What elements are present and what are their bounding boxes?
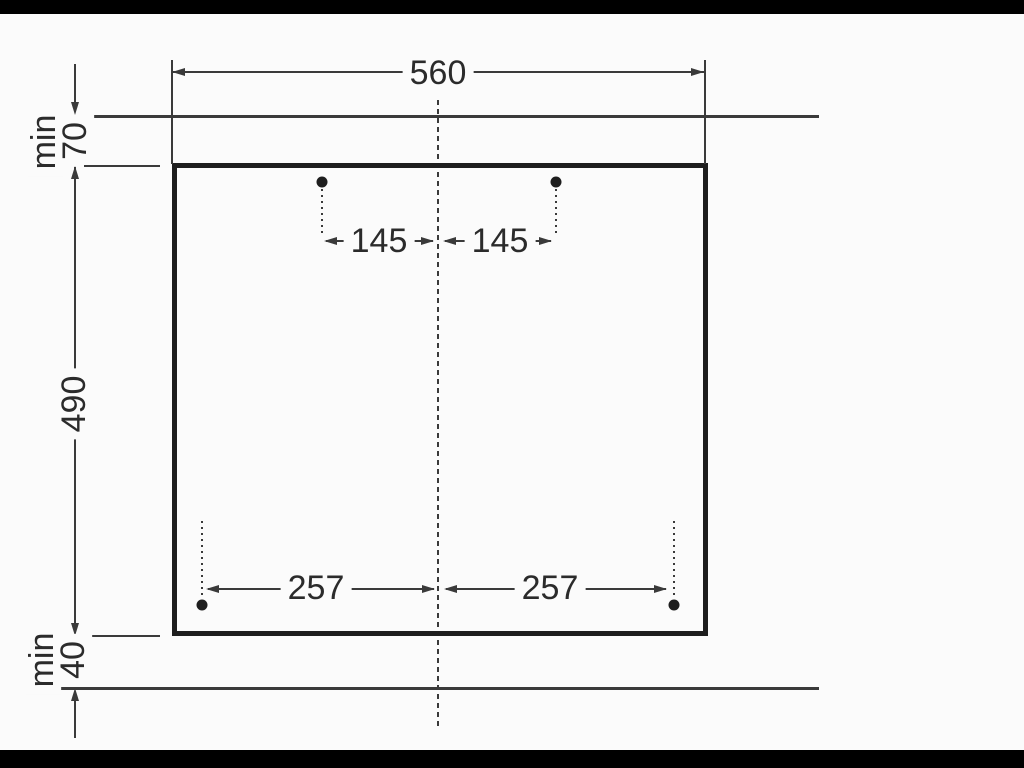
min70-value-label: 70 bbox=[58, 115, 94, 167]
dim-257-right-label: 257 bbox=[515, 571, 586, 607]
dim-257-left-label: 257 bbox=[281, 571, 352, 607]
dim-560-label: 560 bbox=[403, 56, 474, 92]
dim-560-arrow-left bbox=[172, 68, 185, 76]
dim-145-left-arrow-left bbox=[324, 237, 337, 245]
fixing-hole-bottom-right bbox=[669, 600, 680, 611]
dim-min40-arrow-up bbox=[71, 688, 79, 701]
letterbox-bottom-bar bbox=[0, 750, 1024, 768]
fixing-hole-top-right bbox=[551, 177, 562, 188]
dim-145-left-label: 145 bbox=[344, 224, 415, 260]
dim-145-right-arrow-right bbox=[539, 237, 552, 245]
fixing-hole-bottom-left bbox=[197, 600, 208, 611]
dim-560-extension-right bbox=[704, 60, 706, 164]
dim-145-left-arrow-right bbox=[421, 237, 434, 245]
dim-min70-leader-line bbox=[74, 64, 76, 103]
dim-490-extension-top bbox=[84, 165, 160, 167]
dim-490-label: 490 bbox=[57, 369, 93, 440]
dim-min70-arrow-down bbox=[71, 102, 79, 115]
dim-145-right-label: 145 bbox=[465, 224, 536, 260]
min40-value-label: 40 bbox=[56, 634, 92, 686]
cutout-outline bbox=[172, 163, 708, 636]
installation-diagram: 560 min 70 490 min 40 145 145 257 257 bbox=[0, 0, 1024, 768]
dim-145-right-arrow-left bbox=[443, 237, 456, 245]
dim-257-left-arrow-right bbox=[422, 585, 435, 593]
leader-top-left bbox=[321, 189, 323, 236]
leader-top-right bbox=[555, 189, 557, 236]
letterbox-top-bar bbox=[0, 0, 1024, 14]
dim-490-arrow-up bbox=[71, 166, 79, 179]
dim-257-right-arrow-right bbox=[654, 585, 667, 593]
leader-bottom-right bbox=[673, 521, 675, 599]
fixing-hole-top-left bbox=[317, 177, 328, 188]
leader-bottom-left bbox=[201, 521, 203, 599]
dim-257-left-arrow-left bbox=[206, 585, 219, 593]
dim-min40-leader-line bbox=[74, 701, 76, 738]
dim-257-right-arrow-left bbox=[444, 585, 457, 593]
dim-560-arrow-right bbox=[691, 68, 704, 76]
